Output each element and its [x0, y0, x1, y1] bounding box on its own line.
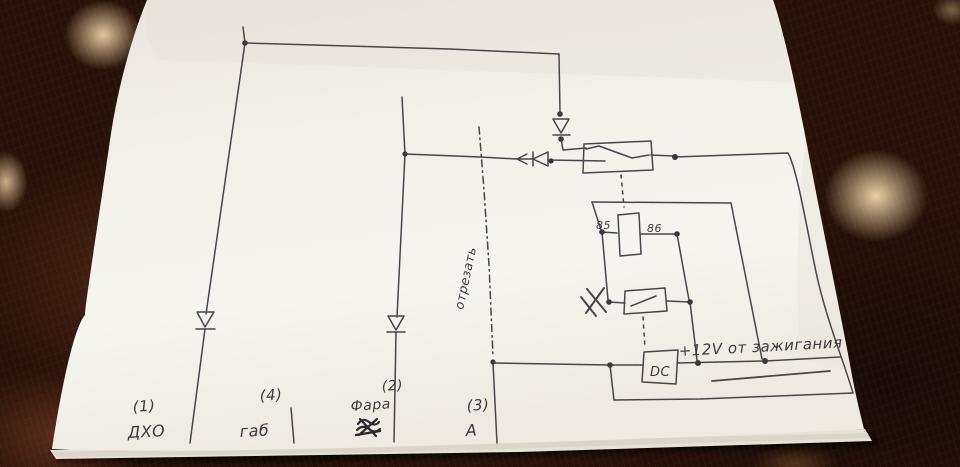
terminal-2-number: (2) — [381, 378, 403, 395]
terminal-4-number: (4) — [259, 385, 283, 405]
relay-pin-85-label: 85 — [596, 219, 611, 232]
terminal-4-label: габ — [239, 420, 270, 441]
terminal-3-number: (3) — [466, 395, 490, 415]
terminal-3-label: А — [464, 420, 477, 440]
terminal-1-label: ДХО — [126, 421, 166, 442]
schematic-photo: (1) ДХО (4) габ (2) Фара (3) А 85 86 DC … — [0, 0, 960, 467]
relay-pin-86-label: 86 — [647, 222, 662, 235]
terminal-1-number: (1) — [132, 396, 156, 416]
dc-module-label: DC — [650, 365, 671, 380]
wire-contact-out — [651, 155, 673, 156]
photo-scene: (1) ДХО (4) габ (2) Фара (3) А 85 86 DC … — [0, 0, 960, 467]
terminal-2-label: Фара — [350, 396, 391, 415]
